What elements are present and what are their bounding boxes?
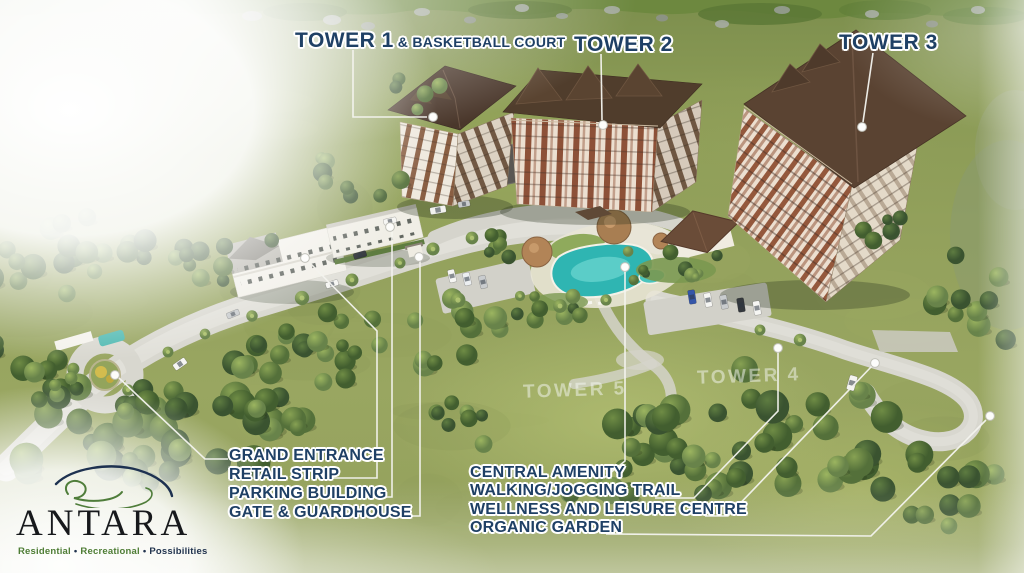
marker-dot: [858, 123, 867, 132]
marker-dot: [301, 254, 310, 263]
callout-central-amenity: CENTRAL AMENITY: [470, 464, 747, 482]
marker-dot: [386, 223, 395, 232]
marker-dot: [621, 263, 630, 272]
callout-group-center: CENTRAL AMENITY WALKING/JOGGING TRAIL WE…: [470, 464, 747, 538]
callout-gate-guardhouse: GATE & GUARDHOUSE: [229, 503, 412, 522]
logo-wordmark: ANTARA: [16, 502, 191, 545]
tower3-label-main: TOWER 3: [839, 31, 938, 54]
tower2-label: TOWER 2: [574, 33, 673, 57]
callout-group-left: GRAND ENTRANCE RETAIL STRIP PARKING BUIL…: [229, 446, 412, 522]
callout-grand-entrance: GRAND ENTRANCE: [229, 446, 412, 465]
tower1-label: TOWER 1& BASKETBALL COURT: [295, 29, 566, 53]
tagline-word: Possibilities: [149, 546, 207, 557]
marker-dot: [599, 121, 608, 130]
marker-dot: [111, 371, 120, 380]
marker-dot: [871, 359, 880, 368]
callout-wellness-leisure-centre: WELLNESS AND LEISURE CENTRE: [470, 501, 747, 519]
callout-walking-jogging-trail: WALKING/JOGGING TRAIL: [470, 482, 747, 500]
callout-parking-building: PARKING BUILDING: [229, 484, 412, 503]
tower3-label: TOWER 3: [839, 31, 938, 55]
tagline-word: Recreational: [80, 546, 139, 557]
marker-dot: [429, 113, 438, 122]
tower1-label-suffix: & BASKETBALL COURT: [398, 34, 566, 50]
tagline-bullet: •: [143, 546, 147, 557]
logo-tagline: Residential•Recreational•Possibilities: [18, 546, 207, 557]
aerial-site-render: TOWER 5 TOWER 4: [0, 0, 1024, 573]
tower1-label-main: TOWER 1: [295, 29, 394, 52]
marker-dot: [415, 253, 424, 262]
marker-dot: [774, 344, 783, 353]
callout-retail-strip: RETAIL STRIP: [229, 465, 412, 484]
tagline-bullet: •: [74, 546, 78, 557]
callout-organic-garden: ORGANIC GARDEN: [470, 519, 747, 537]
tower2-label-main: TOWER 2: [574, 33, 673, 56]
marker-dot: [986, 412, 995, 421]
tagline-word: Residential: [18, 546, 71, 557]
